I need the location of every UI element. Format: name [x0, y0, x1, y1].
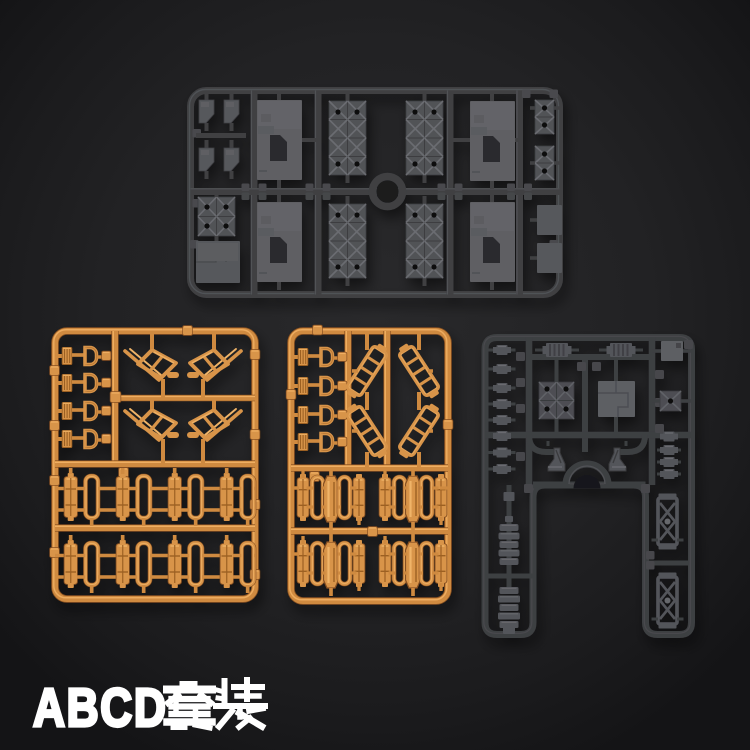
svg-text:ABCD: ABCD — [33, 678, 167, 738]
